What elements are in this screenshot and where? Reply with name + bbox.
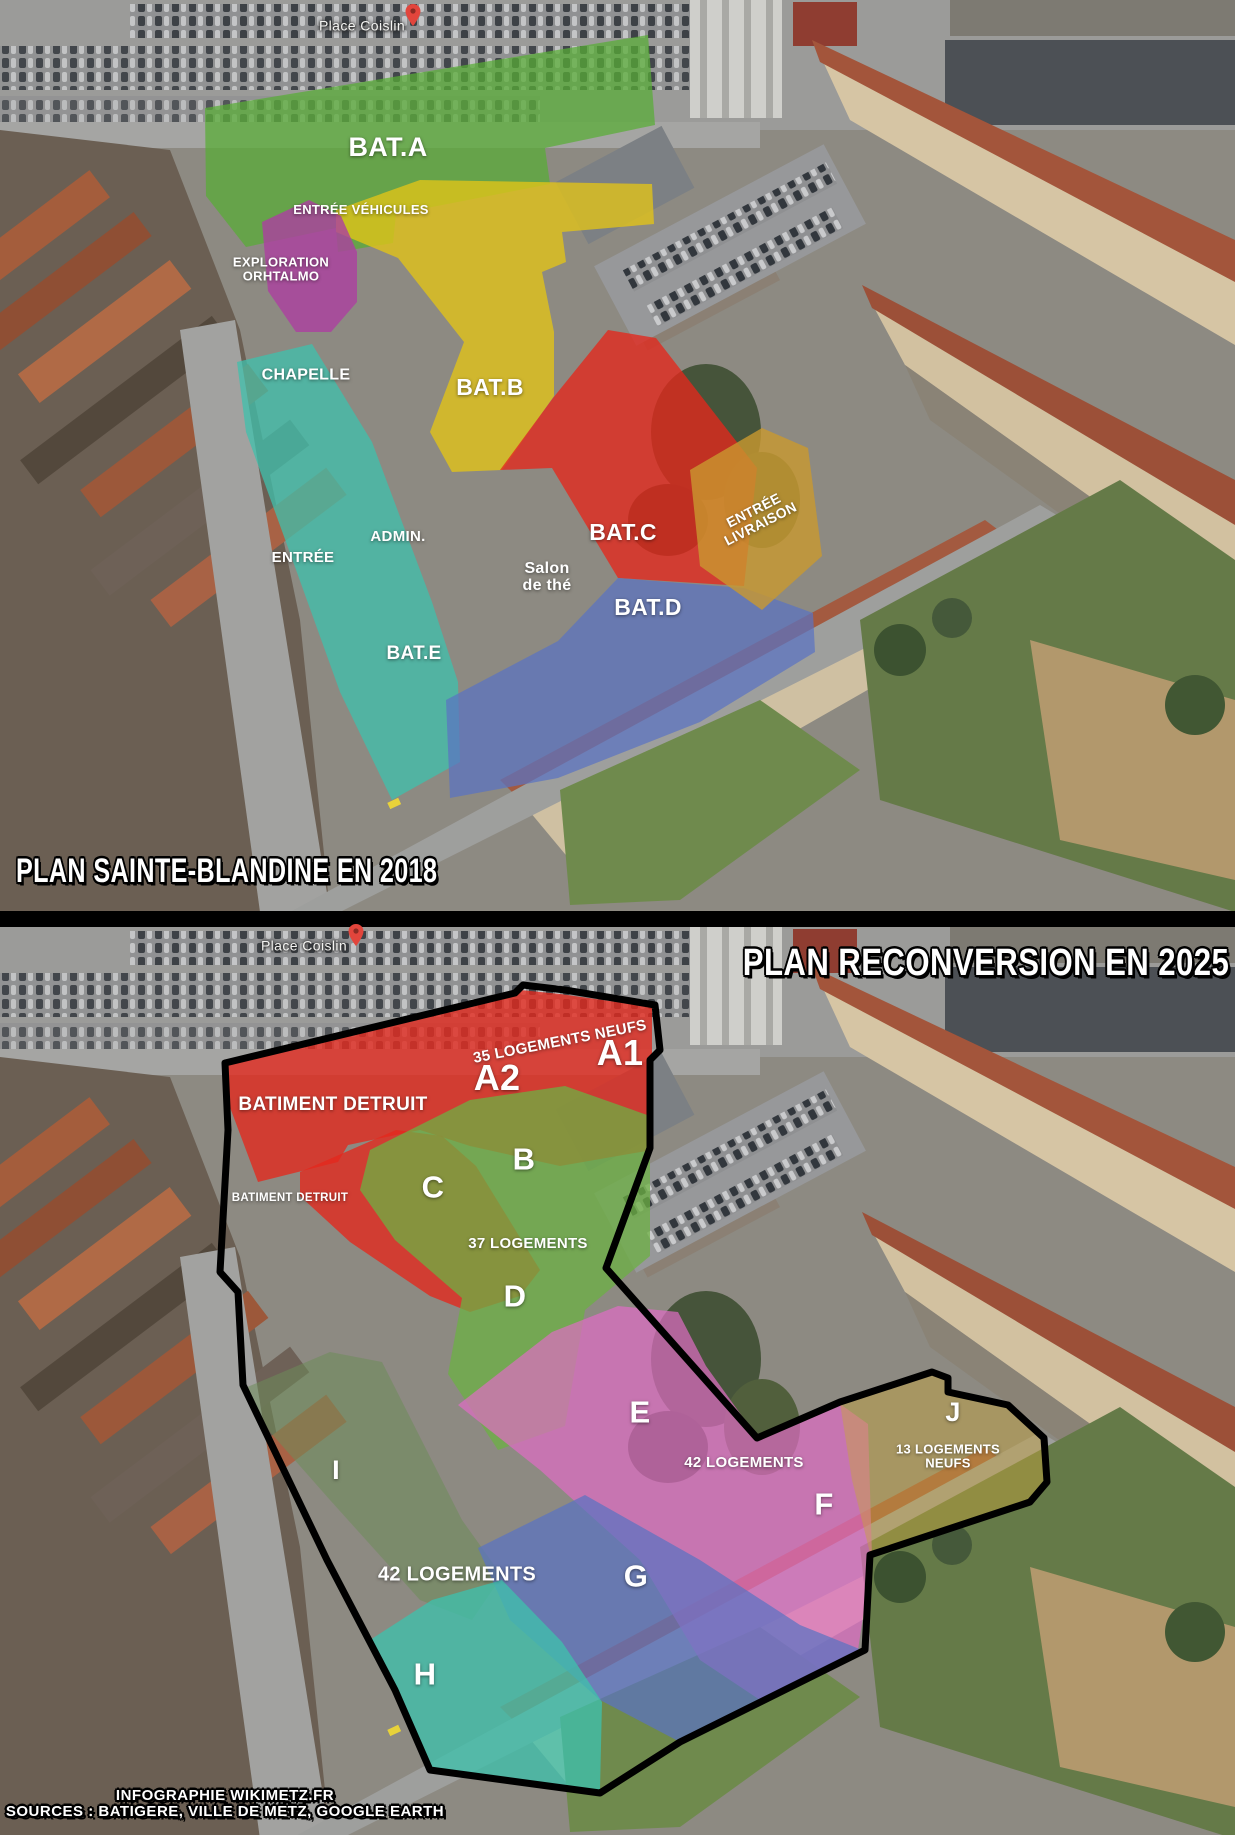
label-admin: ADMIN. [370,529,425,545]
label-g: G [624,1561,648,1594]
label-exploration-orhtalmo: EXPLORATIONORHTALMO [233,255,329,282]
label-entree: ENTRÉE [272,550,335,566]
label-bat-e: BAT.E [387,644,442,664]
label-chapelle: CHAPELLE [262,368,351,385]
label-j: J [945,1398,960,1426]
map-label-place-coislin-bottom: Place Coislin [261,939,347,954]
label-i: I [332,1456,340,1484]
label-bat-a: BAT.A [349,133,428,161]
label-bat-c: BAT.C [589,520,657,544]
label-42-logements-white: 42 LOGEMENTS [378,1565,536,1586]
infographic-canvas: Place Coislin BAT.A ENTRÉE VÉHICULES EXP… [0,0,1235,1835]
label-batiment-detruit-small: BATIMENT DETRUIT [232,1192,348,1204]
label-b: B [513,1144,536,1177]
label-batiment-detruit-big: BATIMENT DETRUIT [238,1095,427,1115]
credits-line-1: INFOGRAPHIE WIKIMETZ.FR [116,1788,334,1804]
panel-divider [0,911,1235,927]
label-42-logements-pink: 42 LOGEMENTS [684,1455,803,1471]
label-37-logements: 37 LOGEMENTS [468,1236,587,1252]
label-d: D [504,1281,527,1314]
label-c: C [422,1172,445,1205]
label-salon-de-the: Salonde thé [523,561,572,595]
credits-line-2: SOURCES : BATIGERE, VILLE DE METZ, GOOGL… [6,1804,444,1820]
title-plan-2018: PLAN SAINTE-BLANDINE EN 2018 [16,852,437,891]
label-entree-vehicules: ENTRÉE VÉHICULES [293,203,429,217]
label-h: H [414,1659,437,1692]
label-a1: A1 [597,1034,644,1072]
map-pin-icon [349,924,364,946]
label-bat-b: BAT.B [456,375,524,399]
aerial-map-scene [0,0,1235,1835]
label-e: E [630,1397,651,1430]
label-13-logements-neufs: 13 LOGEMENTSNEUFS [896,1442,1000,1469]
label-bat-d: BAT.D [614,595,682,619]
map-pin-icon [406,4,421,26]
label-f: F [814,1489,833,1522]
map-label-place-coislin-top: Place Coislin [319,19,405,34]
title-plan-2025: PLAN RECONVERSION EN 2025 [743,942,1229,985]
label-a2: A2 [474,1059,521,1097]
